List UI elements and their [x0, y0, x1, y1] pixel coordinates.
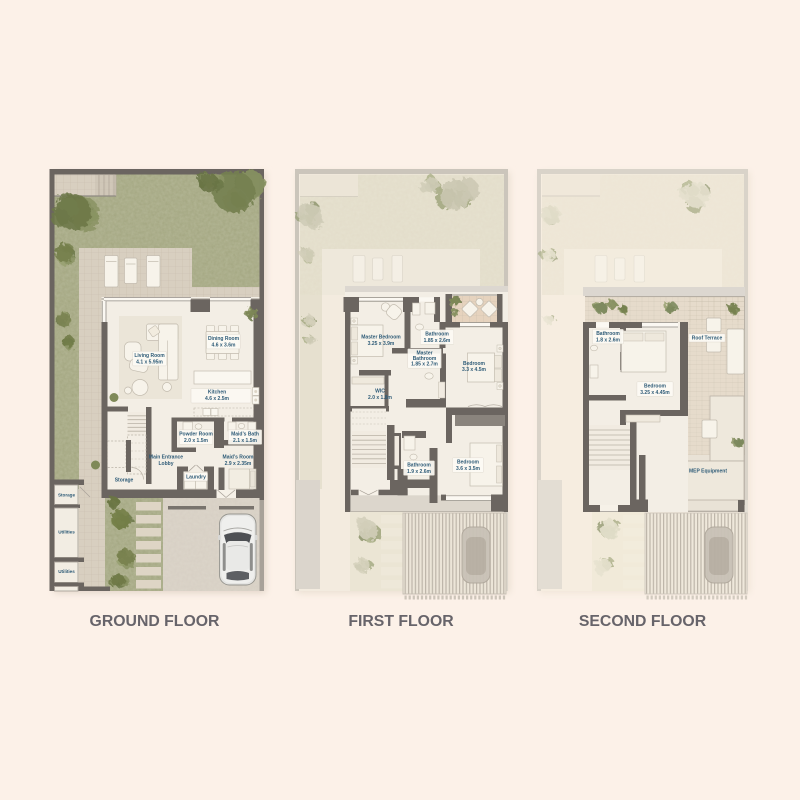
- svg-text:Bathroom: Bathroom: [596, 331, 620, 337]
- svg-text:FIRST FLOOR: FIRST FLOOR: [348, 613, 454, 630]
- svg-text:Living Room: Living Room: [134, 353, 165, 359]
- svg-text:Maid’s Bath: Maid’s Bath: [231, 432, 259, 438]
- svg-text:Utilities: Utilities: [58, 569, 75, 574]
- svg-text:Bedroom: Bedroom: [644, 384, 667, 390]
- svg-text:Main Entrance: Main Entrance: [149, 455, 183, 461]
- svg-text:MEP Equipment: MEP Equipment: [689, 469, 727, 475]
- svg-text:3.6 x 3.5m: 3.6 x 3.5m: [456, 466, 480, 472]
- svg-text:4.6 x 3.6m: 4.6 x 3.6m: [212, 342, 236, 348]
- svg-text:Maid’s Room: Maid’s Room: [223, 455, 254, 461]
- svg-text:Utilities: Utilities: [58, 530, 75, 535]
- svg-text:Storage: Storage: [115, 478, 134, 484]
- svg-text:Bedroom: Bedroom: [457, 460, 480, 466]
- svg-text:3.25 x 3.9m: 3.25 x 3.9m: [368, 341, 395, 347]
- svg-text:SECOND FLOOR: SECOND FLOOR: [579, 613, 707, 630]
- svg-text:WIC: WIC: [375, 389, 385, 395]
- svg-text:Bedroom: Bedroom: [463, 361, 486, 367]
- svg-text:Master Bedroom: Master Bedroom: [361, 335, 401, 341]
- svg-text:Roof Terrace: Roof Terrace: [692, 336, 723, 342]
- svg-text:2.1 x 1.5m: 2.1 x 1.5m: [233, 438, 257, 444]
- svg-text:3.3 x 4.5m: 3.3 x 4.5m: [462, 367, 486, 373]
- svg-text:2.9 x 2.35m: 2.9 x 2.35m: [225, 461, 252, 467]
- svg-text:Laundry: Laundry: [186, 475, 206, 481]
- svg-text:2.0 x 1.8m: 2.0 x 1.8m: [368, 395, 392, 401]
- svg-text:4.6 x 2.5m: 4.6 x 2.5m: [205, 396, 229, 402]
- svg-text:1.85 x 2.6m: 1.85 x 2.6m: [424, 338, 451, 344]
- svg-text:Kitchen: Kitchen: [208, 390, 226, 396]
- svg-text:Bathroom: Bathroom: [407, 463, 431, 469]
- svg-text:1.85 x 2.7m: 1.85 x 2.7m: [411, 362, 438, 368]
- svg-text:Dining Room: Dining Room: [208, 336, 240, 342]
- svg-text:2.0 x 1.5m: 2.0 x 1.5m: [184, 438, 208, 444]
- svg-text:1.8 x 2.6m: 1.8 x 2.6m: [596, 337, 620, 343]
- svg-text:1.9 x 2.6m: 1.9 x 2.6m: [407, 469, 431, 475]
- svg-text:4.1 x 5.95m: 4.1 x 5.95m: [136, 359, 163, 365]
- svg-text:Storage: Storage: [58, 493, 76, 498]
- svg-text:Lobby: Lobby: [159, 461, 174, 467]
- svg-text:Powder Room: Powder Room: [179, 432, 213, 438]
- svg-text:Bathroom: Bathroom: [425, 332, 449, 338]
- svg-text:3.25 x 4.45m: 3.25 x 4.45m: [640, 390, 670, 396]
- svg-text:GROUND FLOOR: GROUND FLOOR: [90, 613, 220, 630]
